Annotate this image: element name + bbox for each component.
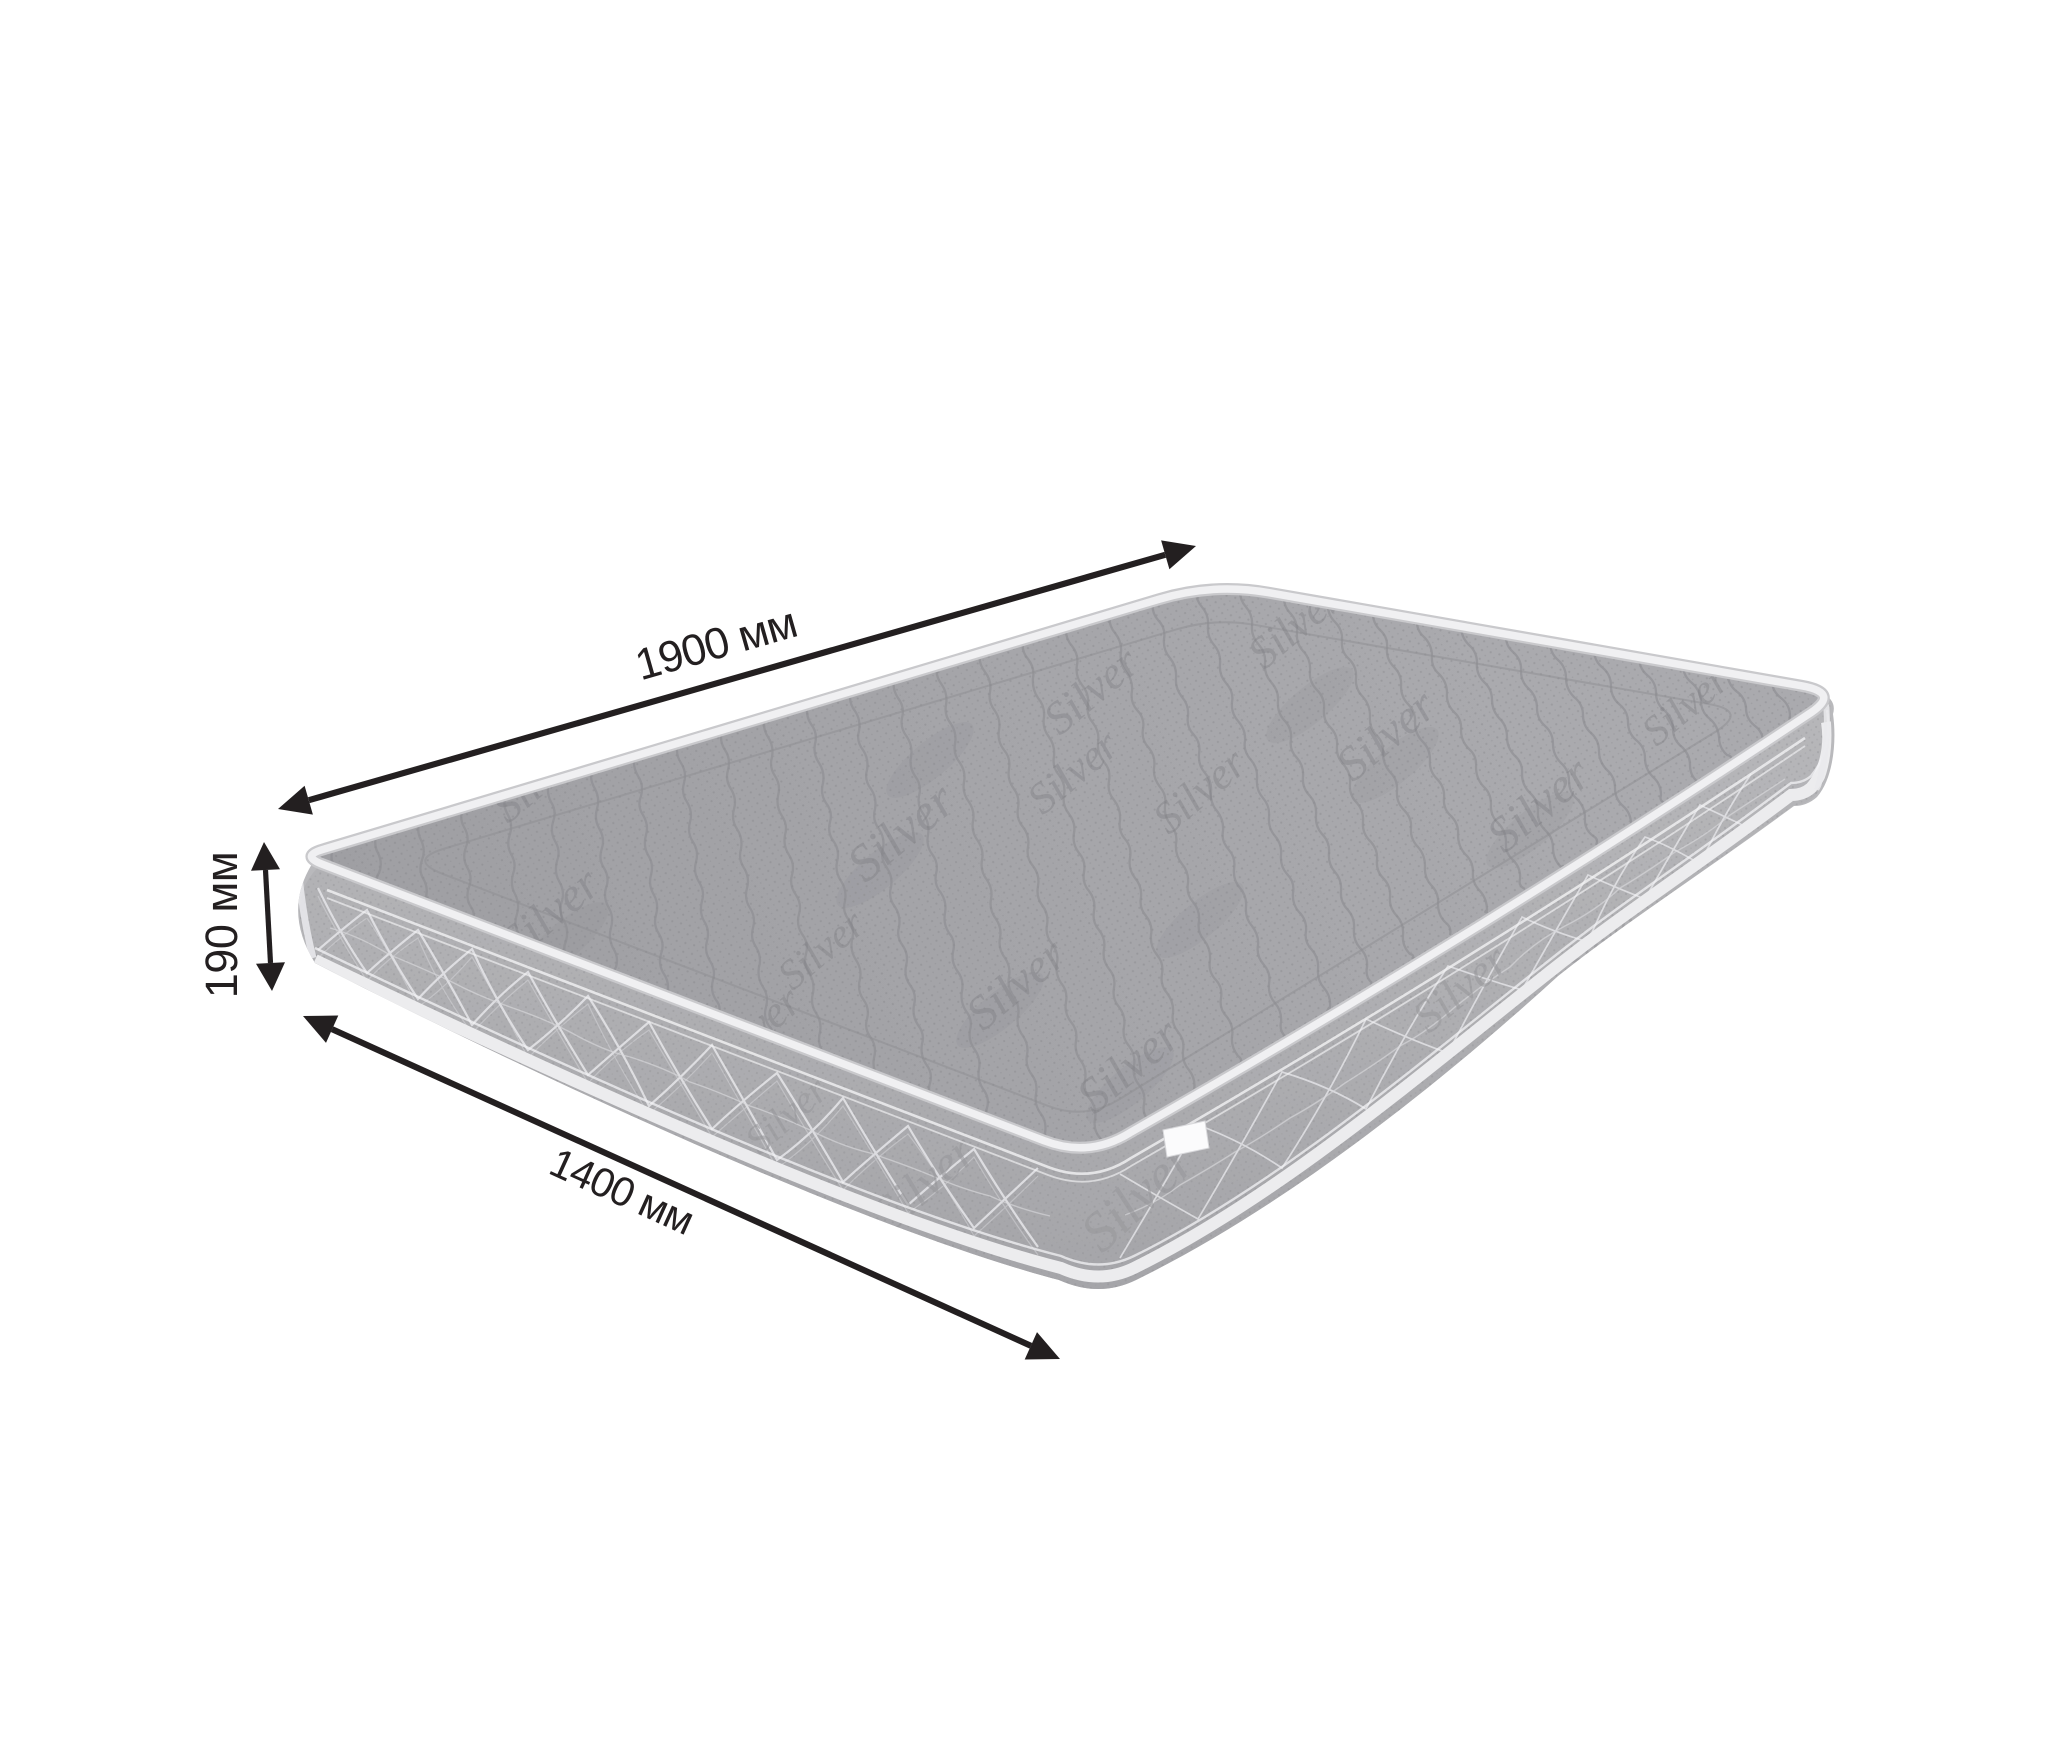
svg-text:1900 мм: 1900 мм (630, 598, 802, 690)
svg-text:190 мм: 190 мм (196, 852, 247, 998)
svg-text:1400 мм: 1400 мм (543, 1139, 700, 1244)
